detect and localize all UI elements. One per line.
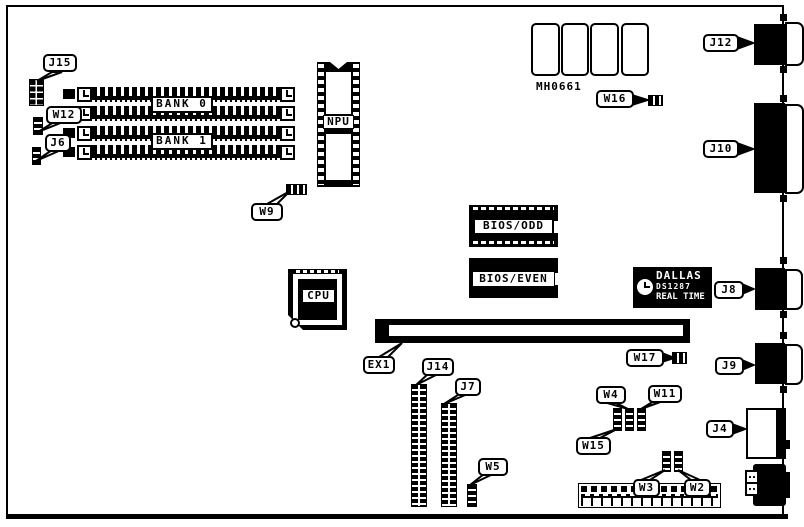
callout-w3: W3 — [633, 479, 660, 497]
callout-j8: J8 — [714, 281, 744, 299]
callout-ex1: EX1 — [363, 356, 395, 374]
callout-w9: W9 — [251, 203, 283, 221]
callout-arrow-j12 — [737, 36, 756, 50]
callout-arrow-w17 — [662, 352, 677, 363]
callout-arrow-j9 — [742, 359, 756, 371]
callout-w4: W4 — [596, 386, 626, 404]
callout-arrow-j4 — [732, 423, 748, 435]
callout-j6: J6 — [45, 134, 71, 152]
callout-w5: W5 — [478, 458, 508, 476]
callout-arrow-w16 — [632, 94, 651, 106]
callout-j12: J12 — [703, 34, 739, 52]
callout-j7: J7 — [455, 378, 481, 396]
callout-tail-j15 — [37, 72, 62, 81]
motherboard-diagram: BANK 0 BANK 1 NPU MH0661 BIOS/ODD BIOS/E… — [0, 0, 804, 527]
callout-arrow-j8 — [742, 283, 756, 295]
callout-j4: J4 — [706, 420, 734, 438]
callout-j15: J15 — [43, 54, 77, 72]
callout-w2: W2 — [684, 479, 711, 497]
callout-w11: W11 — [648, 385, 682, 403]
callout-tails — [0, 0, 804, 527]
callout-tail-ex1 — [379, 343, 402, 357]
callout-j10: J10 — [703, 140, 739, 158]
callout-w17: W17 — [626, 349, 664, 367]
callout-w16: W16 — [596, 90, 634, 108]
callout-arrow-j10 — [737, 142, 756, 156]
callout-w15: W15 — [576, 437, 611, 455]
callout-w12: W12 — [46, 106, 82, 124]
callout-j9: J9 — [715, 357, 744, 375]
callout-j14: J14 — [422, 358, 454, 376]
